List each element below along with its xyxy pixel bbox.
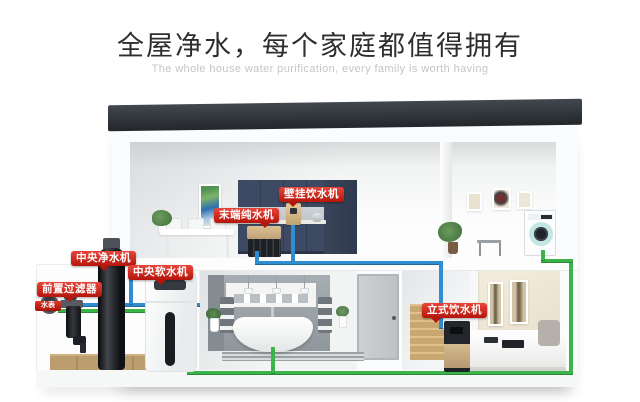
plant-pot	[448, 242, 458, 254]
table-leg	[166, 235, 169, 257]
label-standing-dispenser: 立式饮水机	[422, 303, 487, 318]
standing-dispenser-screen	[450, 327, 463, 334]
pendant-cord	[248, 275, 249, 289]
pendant-cord	[276, 275, 277, 289]
label-central-purifier: 中央净水机	[71, 251, 136, 266]
stool-leg	[499, 243, 501, 256]
green-pipe-washer-drop	[541, 250, 545, 261]
pendant-cord	[304, 275, 305, 289]
softener-salt-window	[165, 312, 175, 366]
standing-dispenser-body	[444, 344, 470, 370]
pendant-lamp	[244, 288, 253, 294]
label-wall-dispenser: 壁挂饮水机	[279, 187, 344, 202]
blue-pipe-ceiling-run	[255, 261, 443, 265]
prefilter-spout	[80, 343, 86, 353]
washer-drum	[534, 227, 548, 241]
prefilter-body	[66, 306, 81, 338]
door-handle	[392, 316, 396, 320]
page-subtitle: The whole house water purification, ever…	[0, 63, 640, 75]
pendant-lamp	[272, 288, 281, 294]
standing-dispenser-base	[444, 368, 470, 372]
water-meter-label: 水表	[35, 301, 61, 311]
softener-seam	[146, 301, 196, 303]
plant-pot	[339, 316, 347, 328]
label-central-softener: 中央软水机	[128, 265, 193, 280]
laundry-picture	[467, 192, 482, 211]
purifier-filter-cartridges	[248, 239, 281, 257]
green-pipe-bottom-run	[187, 371, 573, 375]
plant-pot	[210, 318, 219, 332]
bed-laptop	[502, 340, 524, 348]
pendant-lamp	[300, 288, 309, 294]
label-terminal-purifier: 末端纯水机	[214, 208, 279, 223]
green-pipe-ceiling-right	[541, 259, 573, 263]
bed-pillow	[538, 320, 560, 346]
bathroom-shelf	[234, 294, 308, 303]
stool-leg	[479, 243, 481, 256]
green-pipe-right-riser	[569, 259, 573, 375]
blue-pipe-dispenser-drop	[291, 225, 295, 265]
dining-table	[160, 229, 234, 235]
washer-display	[541, 215, 552, 219]
laundry-picture	[517, 191, 532, 209]
bedroom-picture	[510, 280, 528, 324]
dispenser-screen	[290, 208, 297, 214]
bedroom-picture	[488, 282, 503, 326]
green-pipe-tub-branch	[271, 347, 275, 374]
bed-tray	[484, 337, 498, 343]
label-pre-filter: 前置过滤器	[37, 282, 102, 297]
laundry-picture	[492, 188, 511, 210]
towel-shelf	[220, 297, 234, 333]
promo-poster: 全屋净水，每个家庭都值得拥有 The whole house water pur…	[0, 0, 640, 402]
plant	[152, 210, 172, 226]
towel-shelf	[318, 297, 332, 333]
table-leg	[226, 235, 229, 257]
bath-rug	[222, 352, 364, 361]
stair-step	[410, 328, 448, 336]
page-title: 全屋净水，每个家庭都值得拥有	[0, 24, 640, 63]
kettle	[312, 213, 322, 222]
